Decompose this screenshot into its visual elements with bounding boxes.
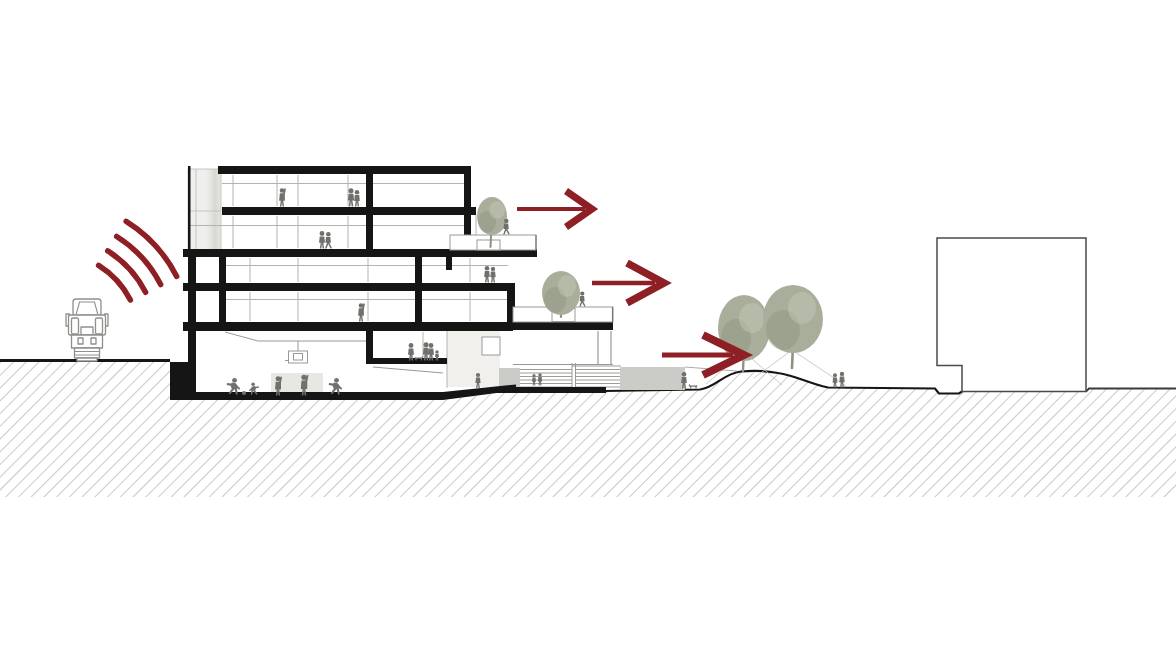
core-wall-upper bbox=[366, 174, 373, 249]
under-landing-line bbox=[373, 367, 443, 373]
person-silhouette-icon bbox=[354, 190, 360, 207]
ball-icon bbox=[242, 391, 246, 395]
truck-bumper bbox=[75, 348, 100, 358]
person-silhouette-icon bbox=[839, 372, 844, 388]
neighbour-building bbox=[937, 238, 1086, 392]
person-silhouette-icon bbox=[325, 232, 332, 249]
section-diagram bbox=[0, 0, 1176, 662]
trees bbox=[477, 197, 846, 386]
left-foundation bbox=[170, 362, 196, 393]
terrace2-slab bbox=[508, 322, 613, 330]
person-silhouette-icon bbox=[319, 231, 325, 248]
colonnade bbox=[513, 331, 613, 365]
roof-terrace-1 bbox=[450, 235, 536, 250]
truck-front-icon bbox=[66, 299, 108, 361]
person-silhouette-icon bbox=[358, 303, 365, 321]
person-silhouette-icon bbox=[348, 188, 354, 206]
dog-silhouette-icon bbox=[689, 384, 698, 389]
room-window bbox=[482, 337, 500, 355]
right-arrow-icon-upper bbox=[517, 191, 592, 227]
floor-slab-2 bbox=[183, 283, 513, 291]
person-silhouette-icon bbox=[484, 266, 490, 283]
sound-waves-icon bbox=[99, 221, 177, 300]
gym-ceiling-line bbox=[225, 332, 366, 341]
ground-floor-slab bbox=[183, 322, 513, 331]
neighbour-building-outline bbox=[937, 238, 1086, 392]
stair-core-panel bbox=[188, 169, 221, 250]
left-wall bbox=[188, 251, 196, 362]
terrace1-planter bbox=[477, 240, 500, 250]
truck-grille bbox=[81, 327, 93, 335]
person-silhouette-icon bbox=[428, 343, 434, 360]
person-silhouette-icon bbox=[423, 342, 429, 360]
person-silhouette-icon bbox=[279, 188, 286, 206]
basketball-hoop-icon bbox=[285, 341, 308, 363]
ground-edge-band bbox=[495, 387, 606, 393]
roof-slab bbox=[218, 166, 471, 174]
gym-partition-wall bbox=[366, 331, 373, 358]
person-silhouette-icon bbox=[579, 291, 585, 306]
landing-slab bbox=[366, 358, 447, 364]
stair-side-wall-right bbox=[620, 367, 685, 390]
right-arrow-icon-middle bbox=[592, 263, 664, 303]
left-facade-line bbox=[188, 166, 191, 251]
floor-slab-4 bbox=[222, 207, 476, 215]
person-silhouette-icon bbox=[408, 343, 414, 360]
person-silhouette-icon bbox=[490, 267, 495, 283]
person-silhouette-icon bbox=[833, 373, 838, 387]
section-diagram-canvas bbox=[0, 0, 1176, 662]
